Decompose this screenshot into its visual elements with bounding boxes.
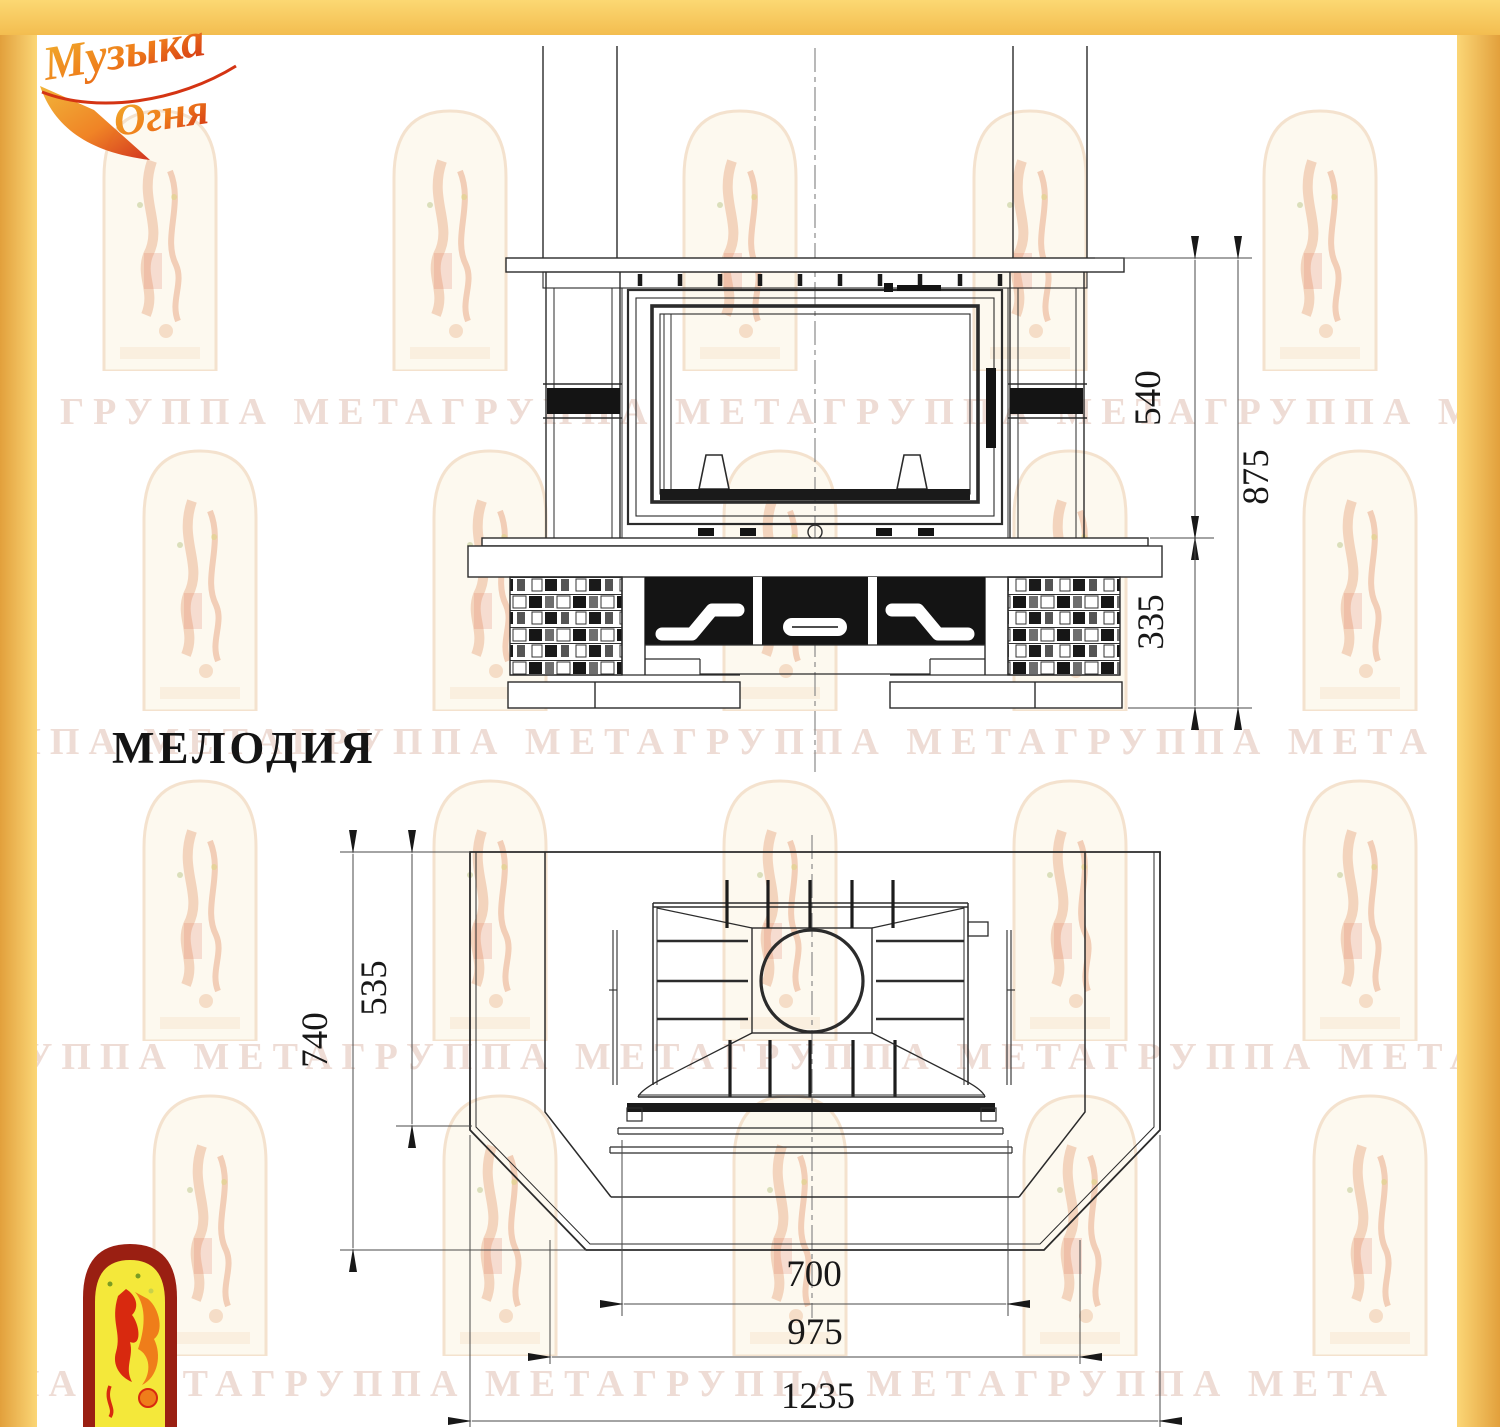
dim-label-335: 335 [1131,594,1172,650]
dim-label-740: 740 [295,1012,336,1068]
cornice [506,258,1124,272]
brick-pillar-left [510,577,622,675]
andiron-left [699,455,729,489]
yellow-border-right [1457,0,1500,1427]
dim-label-535: 535 [354,960,395,1016]
left-column [543,272,622,538]
damper-stub [968,922,988,936]
brand-logo-music-of-fire: Музыка Огня [28,14,258,174]
door-logo-mark [884,283,941,292]
fireplace-technical-drawing: 540 335 875 [0,0,1500,1427]
door-handle [986,368,996,448]
right-column-black-band [1010,388,1083,414]
door-bar-plan [627,1103,995,1112]
plinth-left [508,682,740,708]
brand-logo-word-2: Огня [111,84,212,146]
brand-logo-word-1: Музыка [38,14,208,91]
dim-label-1235: 1235 [781,1376,855,1417]
dim-label-875: 875 [1236,449,1277,505]
brick-pillar-right [1008,577,1120,675]
model-title: МЕЛОДИЯ [112,722,377,774]
dim-label-540: 540 [1128,370,1169,426]
glass-sill [660,489,970,500]
dim-label-975: 975 [787,1312,843,1353]
left-column-black-band [547,388,620,414]
plinth-right [890,682,1122,708]
andiron-right [897,455,927,489]
dim-label-700: 700 [786,1254,842,1295]
mantel-shelf [468,538,1162,577]
yellow-border-left [0,0,37,1427]
flame-figure-logo [80,1238,180,1427]
